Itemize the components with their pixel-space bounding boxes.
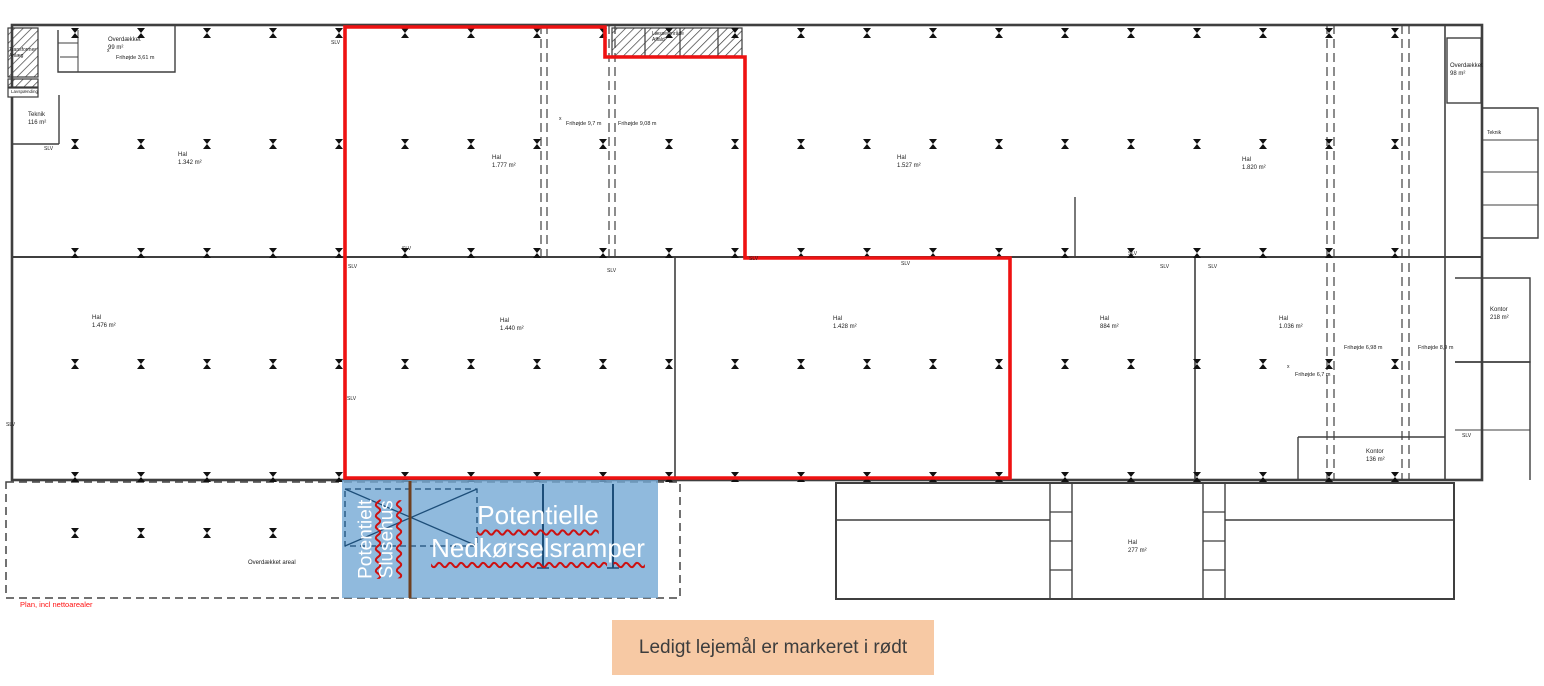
column-marker	[863, 359, 871, 369]
column-marker	[203, 359, 211, 369]
column-marker	[1127, 28, 1135, 38]
column-marker	[269, 248, 277, 258]
column-marker	[929, 359, 937, 369]
column-marker	[269, 472, 277, 482]
slv-label: SLV	[402, 246, 411, 252]
column-marker	[731, 359, 739, 369]
lease-outline-red	[345, 27, 1010, 478]
height-label: x	[559, 116, 562, 122]
height-label: Frihøjde 3,61 m	[116, 55, 155, 61]
column-marker	[863, 28, 871, 38]
slv-label: SLV	[6, 422, 15, 428]
slv-label: SLV	[901, 261, 910, 267]
room-label: Hal 884 m²	[1100, 316, 1119, 331]
potential-slusehus-overlay: Potentielt Slusehus	[336, 480, 418, 598]
column-marker	[71, 359, 79, 369]
column-marker	[1259, 359, 1267, 369]
column-marker	[269, 139, 277, 149]
room-label: Kontor 218 m²	[1490, 307, 1509, 322]
height-label: Frihøjde 9,7 m	[566, 121, 601, 127]
column-marker	[533, 139, 541, 149]
column-marker	[1127, 359, 1135, 369]
column-marker	[1259, 139, 1267, 149]
room-label: Hal 1.428 m²	[833, 316, 857, 331]
column-marker	[1391, 139, 1399, 149]
column-marker	[203, 139, 211, 149]
column-marker	[467, 248, 475, 258]
room-label: Hal 1.036 m²	[1279, 316, 1303, 331]
column-marker	[269, 28, 277, 38]
room-label: Lavspænding	[11, 89, 38, 95]
expansion-joint-lines	[541, 25, 1409, 480]
column-marker	[599, 359, 607, 369]
slv-label: SLV	[44, 146, 53, 152]
height-label: Frihøjde 9,08 m	[618, 121, 657, 127]
column-marker	[71, 139, 79, 149]
room-label: Transformer Anlæg	[9, 47, 36, 60]
column-marker	[401, 139, 409, 149]
column-marker	[1061, 139, 1069, 149]
column-marker	[533, 359, 541, 369]
column-marker	[797, 359, 805, 369]
building-walls	[12, 25, 1538, 599]
column-marker	[1391, 359, 1399, 369]
column-marker	[467, 28, 475, 38]
room-label: Hal 1.527 m²	[897, 155, 921, 170]
ramps-line2: Nedkørselsramper	[431, 533, 645, 563]
column-marker	[929, 28, 937, 38]
column-marker	[269, 359, 277, 369]
room-label: Læsseområde Affald	[652, 31, 684, 44]
column-marker	[467, 139, 475, 149]
column-marker	[731, 139, 739, 149]
column-marker	[533, 248, 541, 258]
column-marker	[1127, 139, 1135, 149]
column-marker	[797, 139, 805, 149]
column-marker	[137, 139, 145, 149]
column-marker	[137, 528, 145, 538]
column-marker	[1391, 28, 1399, 38]
column-marker	[203, 528, 211, 538]
column-marker	[467, 359, 475, 369]
legend-text: Ledigt lejemål er markeret i rødt	[639, 637, 907, 659]
slv-label: SLV	[348, 264, 357, 270]
room-label: Overdækket 98 m²	[1450, 63, 1483, 78]
column-marker	[599, 139, 607, 149]
legend-banner: Ledigt lejemål er markeret i rødt	[612, 620, 934, 675]
column-marker	[731, 248, 739, 258]
room-label: Hal 1.476 m²	[92, 315, 116, 330]
height-label: x	[1287, 364, 1290, 370]
height-label: Frihøjde 8,9 m	[1418, 345, 1453, 351]
column-marker	[335, 139, 343, 149]
room-label: Teknik	[1487, 130, 1501, 136]
height-label: x	[107, 48, 110, 54]
column-marker	[599, 248, 607, 258]
height-label: Frihøjde 6,7 m	[1295, 372, 1330, 378]
column-marker	[1325, 359, 1333, 369]
column-marker	[665, 248, 673, 258]
column-marker	[335, 248, 343, 258]
column-marker	[203, 28, 211, 38]
column-marker	[401, 359, 409, 369]
room-label: Teknik 116 m²	[28, 112, 46, 127]
column-marker	[995, 28, 1003, 38]
column-marker	[1193, 139, 1201, 149]
column-marker	[71, 528, 79, 538]
column-marker	[533, 28, 541, 38]
column-marker	[401, 28, 409, 38]
column-marker	[1193, 28, 1201, 38]
column-marker	[665, 359, 673, 369]
column-marker	[1325, 28, 1333, 38]
column-marker	[1061, 359, 1069, 369]
column-marker	[335, 28, 343, 38]
room-label: Overdækket areal	[248, 560, 296, 568]
column-markers	[71, 28, 1399, 538]
slv-label: SLV	[607, 268, 616, 274]
column-marker	[665, 139, 673, 149]
column-marker	[269, 528, 277, 538]
floorplan-drawing	[0, 0, 1544, 686]
slusehus-line2: Slusehus	[377, 500, 398, 578]
slv-label: SLV	[1462, 433, 1471, 439]
height-label: Frihøjde 6,98 m	[1344, 345, 1383, 351]
room-label: Hal 1.342 m²	[178, 152, 202, 167]
column-marker	[137, 359, 145, 369]
plan-caption: Plan, incl nettoarealer	[20, 600, 93, 609]
room-label: Overdækket 99 m²	[108, 37, 141, 52]
column-marker	[863, 139, 871, 149]
column-marker	[335, 359, 343, 369]
slusehus-label: Potentielt Slusehus	[356, 499, 399, 578]
slv-label: SLV	[1208, 264, 1217, 270]
slv-label: SLV	[331, 40, 340, 46]
ramps-line1: Potentielle	[477, 500, 598, 530]
slv-label: SLV	[1160, 264, 1169, 270]
column-marker	[995, 359, 1003, 369]
potential-ramps-overlay: Potentielle Nedkørselsramper	[413, 499, 663, 564]
room-label: Hal 1.777 m²	[492, 155, 516, 170]
slv-label: SLV	[347, 396, 356, 402]
column-marker	[995, 139, 1003, 149]
slv-label: SLV	[749, 256, 758, 262]
column-marker	[929, 139, 937, 149]
room-label: Hal 277 m²	[1128, 540, 1147, 555]
column-marker	[797, 28, 805, 38]
room-label: Hal 1.820 m²	[1242, 157, 1266, 172]
column-marker	[1325, 139, 1333, 149]
room-label: Kontor 136 m²	[1366, 449, 1385, 464]
column-marker	[1259, 28, 1267, 38]
slusehus-line1: Potentielt	[356, 499, 377, 578]
floor-plan-page: Hal 1.342 m²Hal 1.777 m²Hal 1.527 m²Hal …	[0, 0, 1544, 686]
slv-label: SLV	[1128, 251, 1137, 257]
column-marker	[1061, 28, 1069, 38]
room-label: Hal 1.440 m²	[500, 318, 524, 333]
